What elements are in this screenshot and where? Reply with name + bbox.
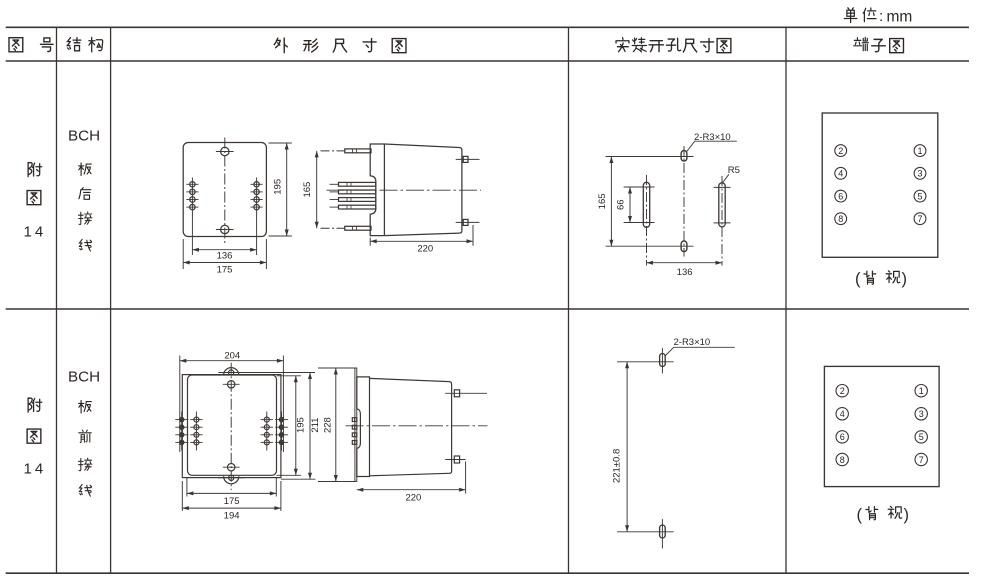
svg-text:4: 4 (840, 409, 845, 419)
svg-text:136: 136 (217, 251, 233, 262)
svg-text:220: 220 (405, 493, 421, 504)
svg-text:195: 195 (296, 417, 307, 433)
svg-text:7: 7 (917, 214, 922, 224)
svg-text:194: 194 (224, 510, 240, 521)
svg-text:228: 228 (323, 417, 334, 433)
svg-text:204: 204 (224, 350, 240, 361)
svg-text:220: 220 (417, 243, 433, 254)
svg-text:175: 175 (224, 496, 240, 507)
svg-text:8: 8 (838, 214, 843, 224)
svg-text:5: 5 (917, 191, 922, 201)
svg-text:14: 14 (24, 461, 47, 478)
svg-text:2-R3×10: 2-R3×10 (694, 132, 731, 143)
svg-text:): ) (904, 506, 910, 524)
svg-text:(: ( (855, 270, 861, 288)
svg-text:175: 175 (217, 264, 233, 275)
svg-text:165: 165 (302, 182, 313, 198)
svg-text:2: 2 (838, 146, 843, 156)
svg-text:1: 1 (919, 386, 924, 396)
svg-text:BCH: BCH (68, 128, 100, 145)
svg-text:): ) (902, 270, 908, 288)
svg-text:14: 14 (24, 224, 47, 241)
svg-text:7: 7 (919, 455, 924, 465)
svg-text:2: 2 (840, 386, 845, 396)
svg-text:1: 1 (917, 146, 922, 156)
svg-text:2-R3×10: 2-R3×10 (674, 337, 711, 348)
svg-text:5: 5 (919, 432, 924, 442)
svg-text:211: 211 (310, 418, 321, 433)
svg-text:221±0.8: 221±0.8 (611, 449, 622, 483)
svg-text:8: 8 (840, 455, 845, 465)
svg-text:BCH: BCH (68, 369, 100, 386)
svg-text:4: 4 (838, 169, 843, 179)
svg-text:136: 136 (677, 267, 693, 278)
svg-text:165: 165 (597, 193, 608, 209)
svg-text::: : (879, 8, 883, 25)
svg-text:3: 3 (919, 409, 924, 419)
svg-text:6: 6 (838, 191, 843, 201)
svg-text:R5: R5 (728, 165, 740, 176)
svg-text:3: 3 (917, 169, 922, 179)
svg-text:mm: mm (887, 9, 913, 26)
svg-text:6: 6 (840, 432, 845, 442)
svg-text:66: 66 (615, 199, 626, 210)
svg-text:195: 195 (273, 179, 284, 195)
svg-text:(: ( (857, 506, 863, 524)
